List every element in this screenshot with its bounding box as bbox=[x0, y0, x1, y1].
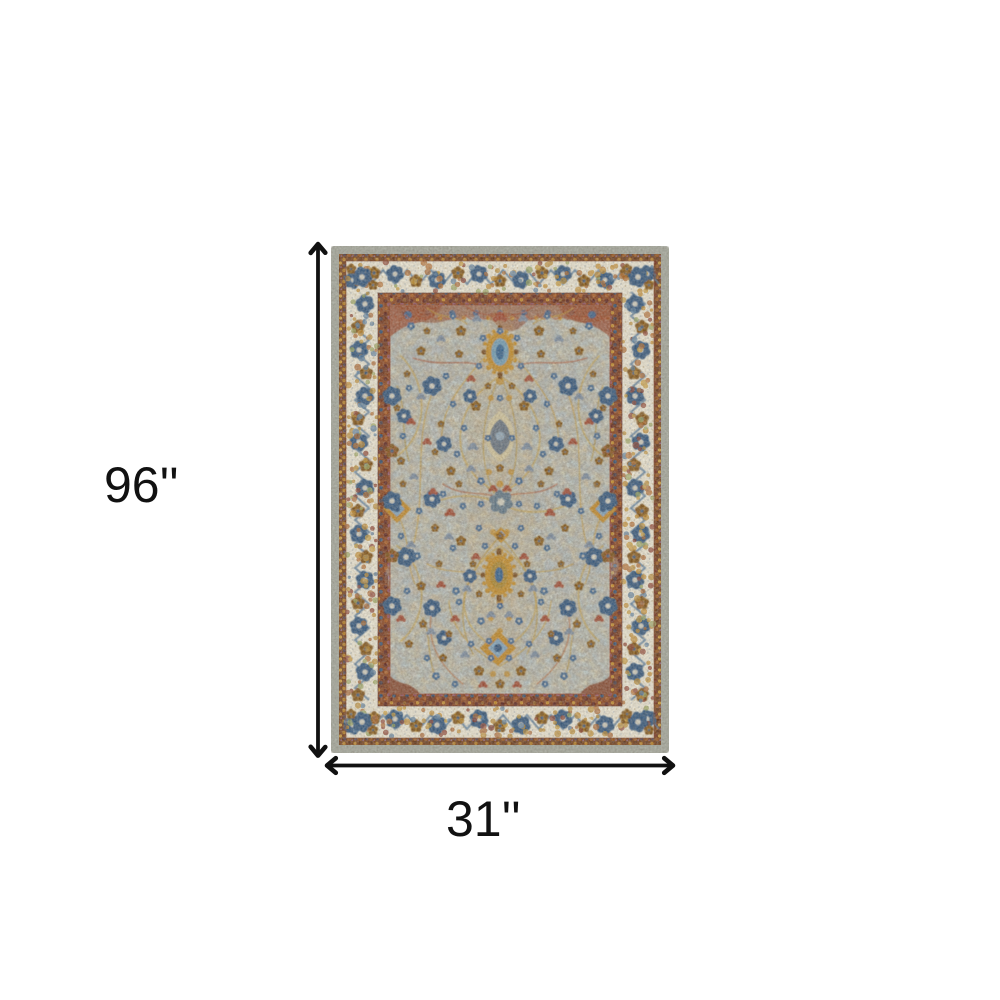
svg-text:96'': 96'' bbox=[104, 457, 179, 513]
svg-text:31'': 31'' bbox=[446, 791, 521, 847]
